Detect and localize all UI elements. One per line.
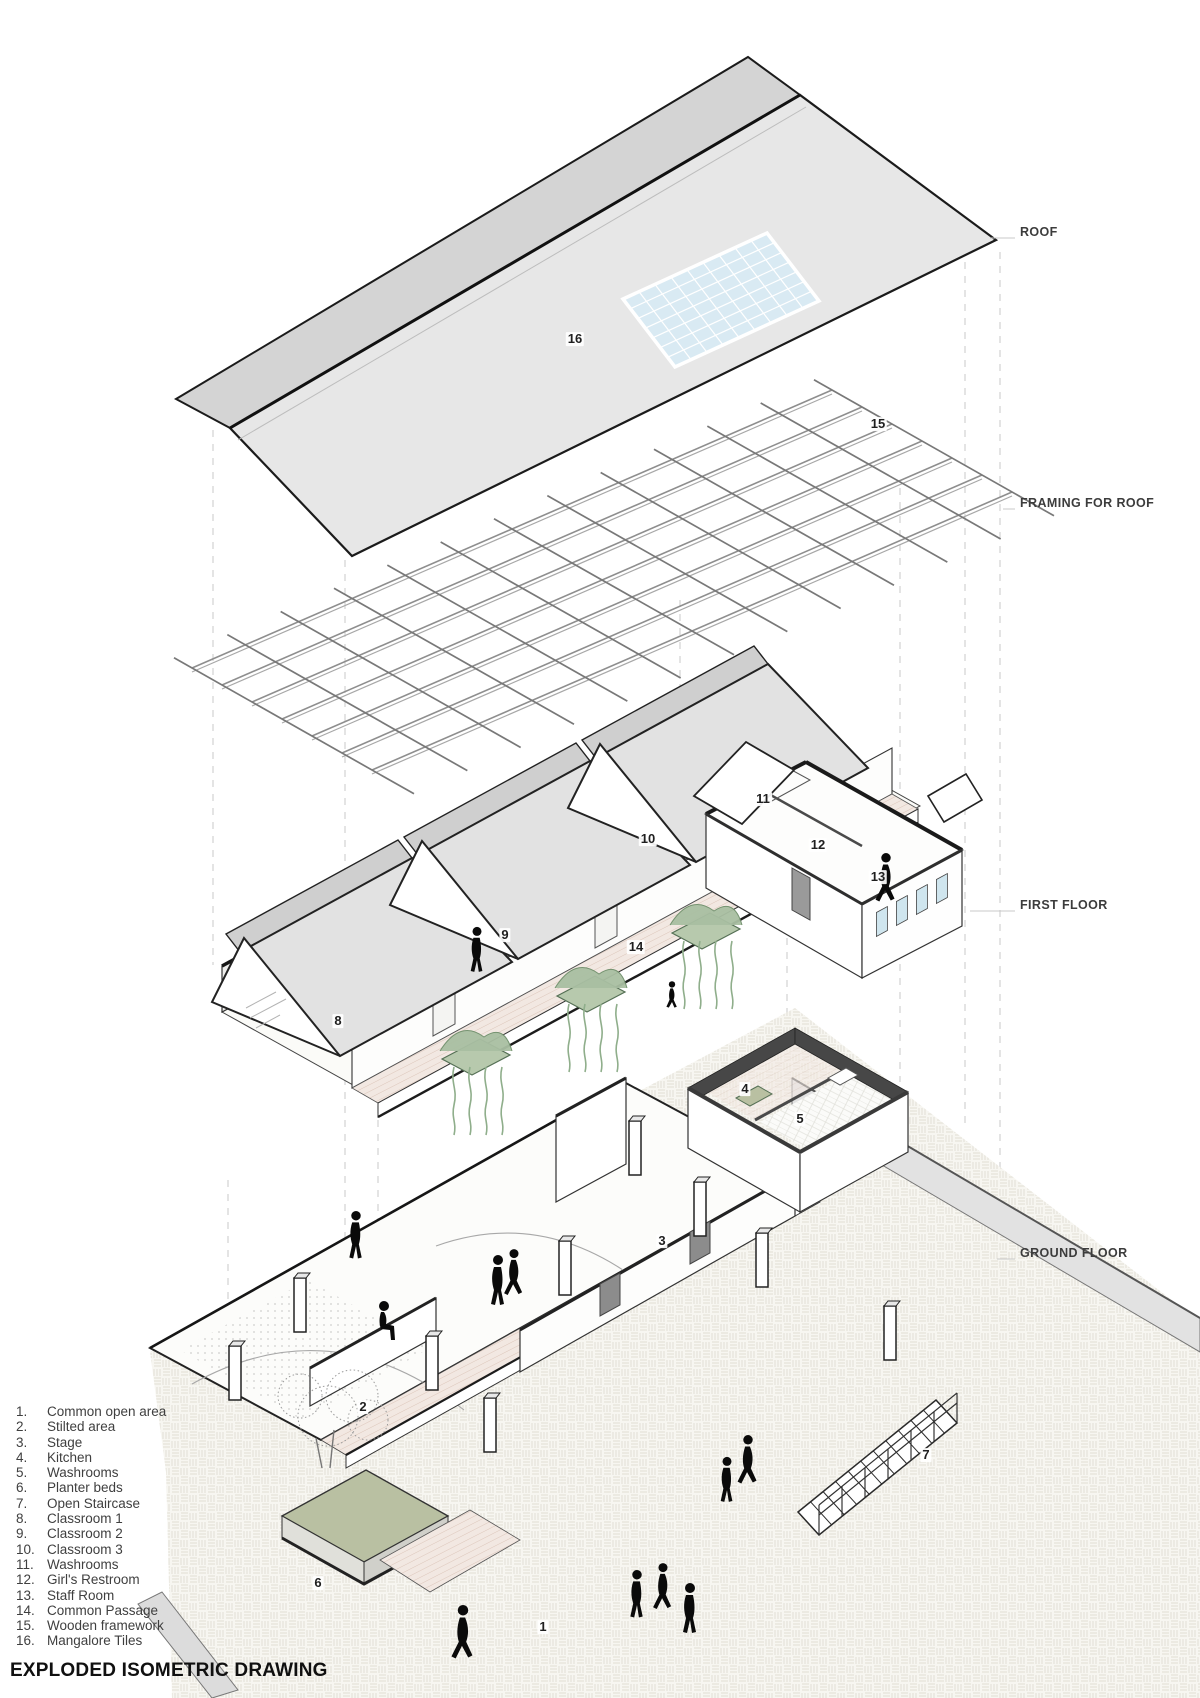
legend-item-number: 11. xyxy=(16,1557,34,1572)
legend-item-label: Common open area xyxy=(47,1404,166,1419)
legend-item-number: 9. xyxy=(16,1526,27,1541)
legend-item-label: Planter beds xyxy=(47,1480,123,1495)
legend-item-number: 12. xyxy=(16,1572,35,1587)
legend-item: 5.Washrooms xyxy=(16,1465,246,1480)
layer-label-ground-floor: GROUND FLOOR xyxy=(1020,1246,1128,1260)
legend-item-label: Common Passage xyxy=(47,1603,158,1618)
annotation-3: 3 xyxy=(656,1234,667,1248)
legend-item-label: Staff Room xyxy=(47,1588,114,1603)
legend-item: 15.Wooden framework xyxy=(16,1618,246,1633)
legend-item-label: Open Staircase xyxy=(47,1496,140,1511)
legend-item-label: Mangalore Tiles xyxy=(47,1633,142,1648)
legend-item: 16.Mangalore Tiles xyxy=(16,1633,246,1648)
annotation-15: 15 xyxy=(869,417,887,431)
annotation-13: 13 xyxy=(869,870,887,884)
legend-item-number: 5. xyxy=(16,1465,27,1480)
annotation-2: 2 xyxy=(357,1400,368,1414)
legend-item-label: Stilted area xyxy=(47,1419,115,1434)
layer-label-framing-for-roof: FRAMING FOR ROOF xyxy=(1020,496,1154,510)
legend-item-number: 10. xyxy=(16,1542,35,1557)
legend-item-label: Classroom 3 xyxy=(47,1542,123,1557)
annotation-11: 11 xyxy=(754,792,772,806)
legend-item: 14.Common Passage xyxy=(16,1603,246,1618)
exploded-isometric-drawing: ROOFFRAMING FOR ROOFFIRST FLOORGROUND FL… xyxy=(0,0,1200,1698)
legend-item: 2.Stilted area xyxy=(16,1419,246,1434)
legend-item-number: 14. xyxy=(16,1603,35,1618)
legend-item: 7.Open Staircase xyxy=(16,1496,246,1511)
legend-item: 12.Girl's Restroom xyxy=(16,1572,246,1587)
annotation-4: 4 xyxy=(739,1082,750,1096)
legend-item: 9.Classroom 2 xyxy=(16,1526,246,1541)
gable-arrow-right xyxy=(928,774,982,822)
legend-item: 8.Classroom 1 xyxy=(16,1511,246,1526)
label-leader-lines xyxy=(970,238,1015,1259)
legend-item-number: 3. xyxy=(16,1435,27,1450)
first-floor-layer xyxy=(212,646,982,1135)
person-silhouette xyxy=(666,981,676,1007)
legend-item: 6.Planter beds xyxy=(16,1480,246,1495)
annotation-16: 16 xyxy=(566,332,584,346)
annotation-1: 1 xyxy=(537,1620,548,1634)
legend: 1.Common open area2.Stilted area3.Stage4… xyxy=(16,1404,246,1649)
legend-item-label: Washrooms xyxy=(47,1465,119,1480)
legend-item: 13.Staff Room xyxy=(16,1588,246,1603)
legend-item-number: 15. xyxy=(16,1618,35,1633)
legend-item-label: Classroom 2 xyxy=(47,1526,123,1541)
annotation-7: 7 xyxy=(920,1448,931,1462)
annotation-14: 14 xyxy=(627,940,645,954)
legend-item-number: 7. xyxy=(16,1496,27,1511)
legend-item-number: 13. xyxy=(16,1588,35,1603)
legend-item-label: Stage xyxy=(47,1435,82,1450)
annotation-9: 9 xyxy=(499,928,510,942)
legend-item-label: Classroom 1 xyxy=(47,1511,123,1526)
legend-item: 3.Stage xyxy=(16,1435,246,1450)
drawing-title: EXPLODED ISOMETRIC DRAWING xyxy=(10,1660,328,1682)
legend-item-label: Kitchen xyxy=(47,1450,92,1465)
legend-item: 11.Washrooms xyxy=(16,1557,246,1572)
legend-item-number: 16. xyxy=(16,1633,35,1648)
legend-item-number: 2. xyxy=(16,1419,27,1434)
legend-item-label: Washrooms xyxy=(47,1557,119,1572)
legend-item-number: 8. xyxy=(16,1511,27,1526)
layer-label-first-floor: FIRST FLOOR xyxy=(1020,898,1108,912)
annotation-6: 6 xyxy=(312,1576,323,1590)
legend-item-number: 4. xyxy=(16,1450,27,1465)
legend-item-number: 1. xyxy=(16,1404,27,1419)
legend-item-label: Wooden framework xyxy=(47,1618,164,1633)
legend-item: 10.Classroom 3 xyxy=(16,1542,246,1557)
annotation-8: 8 xyxy=(332,1014,343,1028)
annotation-12: 12 xyxy=(809,838,827,852)
legend-item: 1.Common open area xyxy=(16,1404,246,1419)
legend-item-label: Girl's Restroom xyxy=(47,1572,140,1587)
layer-label-roof: ROOF xyxy=(1020,225,1058,239)
ground-floor-layer xyxy=(138,1008,1200,1698)
annotation-5: 5 xyxy=(794,1112,805,1126)
annotation-10: 10 xyxy=(639,832,657,846)
roof-layer xyxy=(176,57,996,556)
legend-item-number: 6. xyxy=(16,1480,27,1495)
legend-item: 4.Kitchen xyxy=(16,1450,246,1465)
